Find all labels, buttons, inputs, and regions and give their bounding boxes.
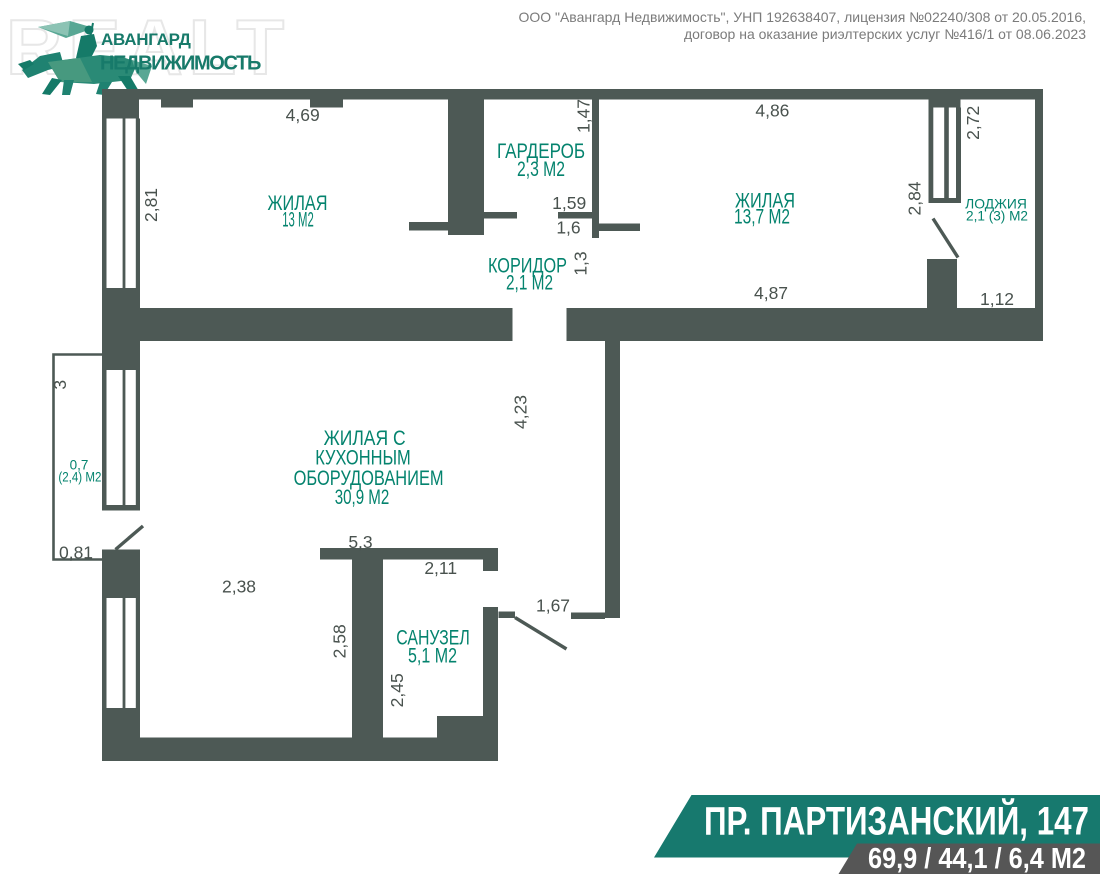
svg-text:2,72: 2,72 — [963, 106, 983, 140]
svg-text:1,3: 1,3 — [570, 251, 590, 275]
svg-text:НЕДВИЖИМОСТЬ: НЕДВИЖИМОСТЬ — [100, 53, 262, 75]
svg-text:договор на оказание риэлтерски: договор на оказание риэлтерских услуг №4… — [684, 26, 1086, 42]
svg-text:13 М2: 13 М2 — [282, 208, 314, 231]
svg-text:3: 3 — [50, 380, 70, 390]
svg-text:5,1 М2: 5,1 М2 — [408, 645, 457, 668]
svg-text:4,87: 4,87 — [754, 283, 788, 303]
svg-text:4,86: 4,86 — [755, 101, 789, 121]
svg-text:ПР. ПАРТИЗАНСКИЙ, 147: ПР. ПАРТИЗАНСКИЙ, 147 — [704, 798, 1089, 844]
svg-text:2,45: 2,45 — [387, 673, 407, 707]
svg-text:1,59: 1,59 — [552, 193, 586, 213]
svg-text:1,67: 1,67 — [536, 595, 570, 615]
svg-text:АВАНГАРД: АВАНГАРД — [101, 30, 192, 49]
svg-text:4,69: 4,69 — [286, 105, 320, 125]
svg-text:1,6: 1,6 — [556, 217, 580, 237]
svg-text:2,38: 2,38 — [222, 577, 256, 597]
svg-text:0,81: 0,81 — [59, 542, 93, 562]
svg-text:2,84: 2,84 — [904, 181, 924, 215]
svg-text:1,12: 1,12 — [980, 289, 1014, 309]
svg-text:5,3: 5,3 — [348, 532, 372, 552]
svg-text:4,23: 4,23 — [510, 395, 530, 429]
svg-text:1,47: 1,47 — [573, 99, 593, 133]
svg-text:2,58: 2,58 — [330, 624, 350, 658]
svg-text:2,1 М2: 2,1 М2 — [506, 271, 553, 294]
svg-text:2,11: 2,11 — [424, 558, 457, 578]
svg-text:(2,4) М2: (2,4) М2 — [58, 469, 101, 484]
svg-text:30,9 М2: 30,9 М2 — [335, 486, 390, 509]
svg-text:ООО "Авангард Недвижимость", У: ООО "Авангард Недвижимость", УНП 1926384… — [518, 9, 1086, 25]
svg-text:2,81: 2,81 — [141, 188, 161, 222]
svg-text:2,3 М2: 2,3 М2 — [517, 158, 565, 181]
svg-text:69,9 / 44,1 / 6,4 М2: 69,9 / 44,1 / 6,4 М2 — [868, 843, 1086, 874]
svg-text:13,7 М2: 13,7 М2 — [734, 205, 790, 228]
svg-text:2,1 (3) М2: 2,1 (3) М2 — [966, 209, 1028, 224]
